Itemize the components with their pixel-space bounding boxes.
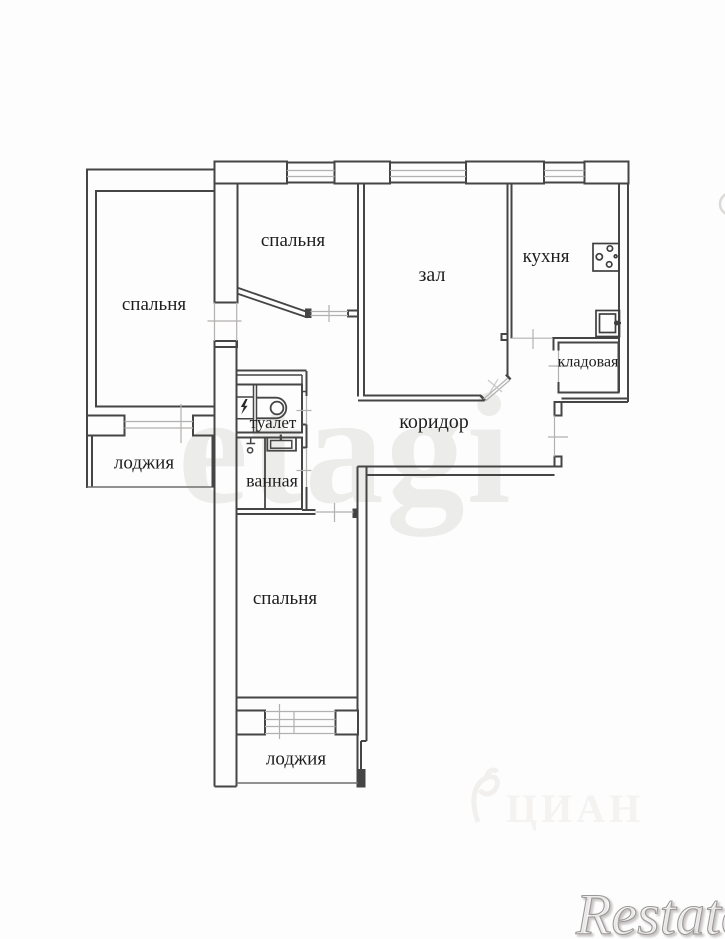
svg-text:спальня: спальня — [261, 230, 326, 251]
svg-text:лоджия: лоджия — [266, 749, 326, 770]
svg-text:etagi: etagi — [178, 362, 513, 537]
svg-text:туалет: туалет — [250, 413, 297, 432]
svg-text:ЦИАН: ЦИАН — [506, 786, 644, 831]
svg-text:Restate: Restate — [575, 882, 725, 939]
svg-text:спальня: спальня — [122, 294, 187, 315]
svg-text:кладовая: кладовая — [558, 354, 619, 371]
svg-text:коридор: коридор — [399, 411, 469, 433]
svg-text:лоджия: лоджия — [114, 453, 174, 474]
svg-text:спальня: спальня — [253, 588, 318, 609]
svg-text:кухня: кухня — [523, 246, 570, 267]
svg-text:ванная: ванная — [246, 471, 298, 491]
svg-text:зал: зал — [419, 264, 446, 286]
